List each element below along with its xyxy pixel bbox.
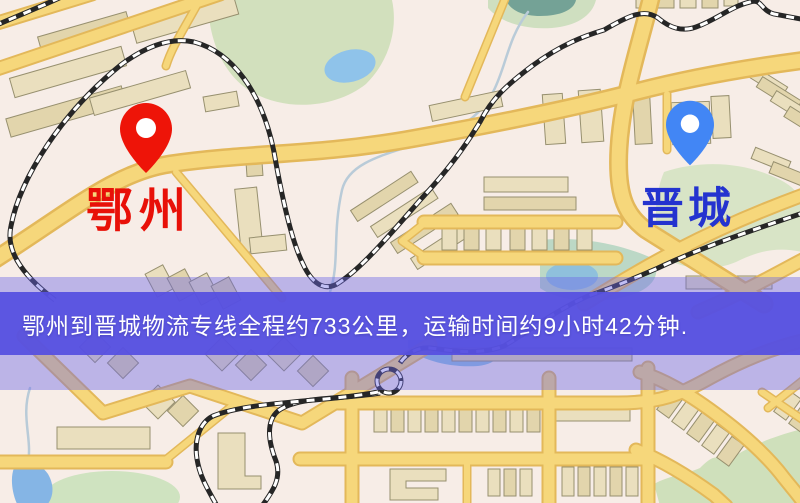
map-screenshot: 鄂州 晋城 鄂州到晋城物流专线全程约733公里，运输时间约9小时42分钟. xyxy=(0,0,800,503)
destination-pin-icon xyxy=(666,100,714,166)
route-info-banner: 鄂州到晋城物流专线全程约733公里，运输时间约9小时42分钟. xyxy=(0,277,800,390)
origin-pin-icon xyxy=(120,103,172,173)
route-info-text: 鄂州到晋城物流专线全程约733公里，运输时间约9小时42分钟. xyxy=(0,307,688,341)
route-info-band: 鄂州到晋城物流专线全程约733公里，运输时间约9小时42分钟. xyxy=(0,292,800,355)
map-canvas xyxy=(0,0,800,503)
destination-label: 晋城 xyxy=(641,174,735,236)
origin-label: 鄂州 xyxy=(86,172,192,241)
